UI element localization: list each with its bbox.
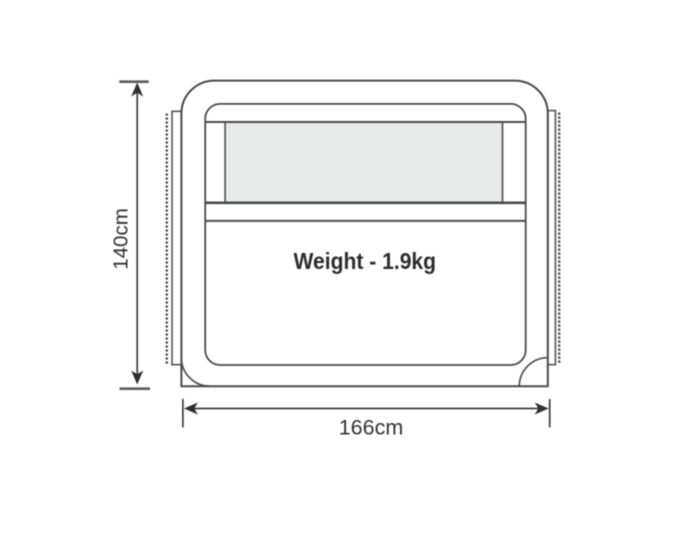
- svg-text:166cm: 166cm: [339, 416, 404, 440]
- svg-text:140cm: 140cm: [110, 208, 133, 270]
- svg-text:Weight - 1.9kg: Weight - 1.9kg: [294, 248, 437, 274]
